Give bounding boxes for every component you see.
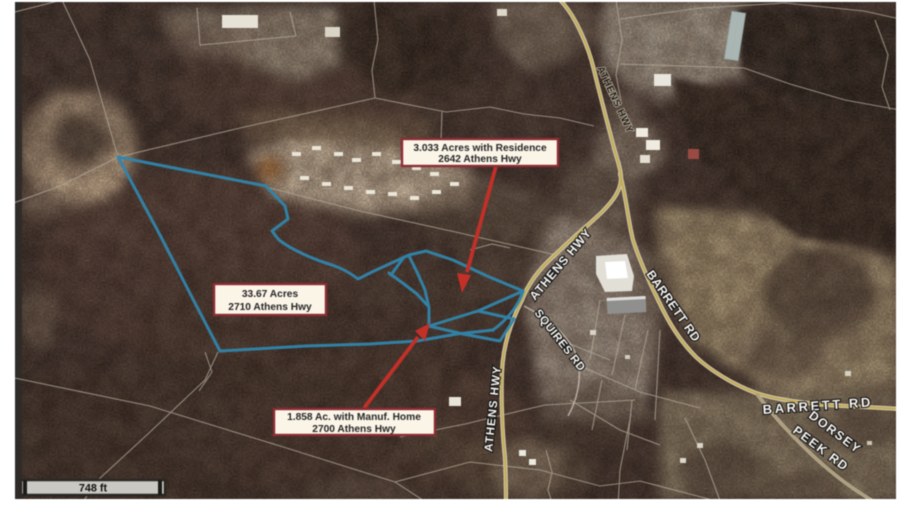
svg-text:33.67 Acres: 33.67 Acres <box>242 289 299 300</box>
svg-text:1.858 Ac. with Manuf. Home: 1.858 Ac. with Manuf. Home <box>287 412 421 423</box>
svg-text:3.033 Acres with Residence: 3.033 Acres with Residence <box>413 143 547 154</box>
svg-text:2700 Athens Hwy: 2700 Athens Hwy <box>312 424 396 435</box>
svg-text:2710 Athens Hwy: 2710 Athens Hwy <box>228 302 312 313</box>
svg-text:748 ft: 748 ft <box>79 483 108 495</box>
svg-text:2642 Athens Hwy: 2642 Athens Hwy <box>438 154 522 165</box>
